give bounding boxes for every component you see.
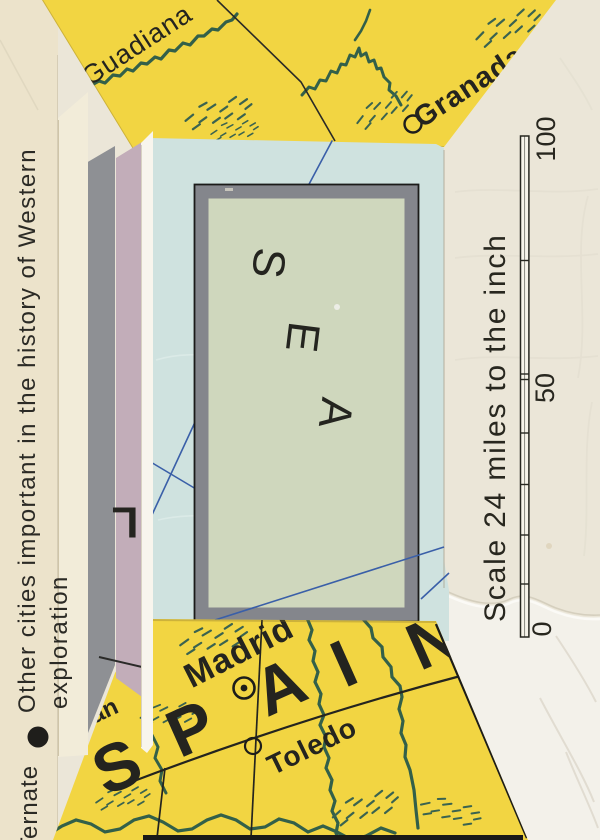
framed-green-panel: S E A xyxy=(195,185,450,622)
scale-label-100: 100 xyxy=(531,116,561,161)
gray-strip xyxy=(86,146,115,733)
madrid-city-marker-dot xyxy=(241,685,248,692)
sea-letter-e: E xyxy=(276,319,330,355)
fragment-letter-l: L xyxy=(112,498,139,547)
legend-bullet-icon xyxy=(28,727,49,748)
sea-letter-s: S xyxy=(242,245,296,281)
paper-speck xyxy=(546,543,552,549)
legend-line1: Other cities important in the history of… xyxy=(14,148,41,713)
panel-inner xyxy=(209,199,405,608)
scale-label-50: 50 xyxy=(530,373,560,403)
legend-entry-ternate: Ternate xyxy=(16,765,43,840)
paper-fleck xyxy=(225,188,233,191)
collage-photo: Guadiana Granada S E A xyxy=(0,0,600,840)
paper-fleck xyxy=(334,304,340,310)
sea-letter-a: A xyxy=(309,395,363,431)
collage-canvas: Guadiana Granada S E A xyxy=(0,0,600,840)
white-strip xyxy=(141,131,153,753)
scale-caption: Scale 24 miles to the inch xyxy=(479,233,512,622)
lavender-strip xyxy=(116,142,142,697)
legend-line2: exploration xyxy=(46,575,73,709)
map-border-bar xyxy=(143,835,523,840)
scale-label-0: 0 xyxy=(527,621,557,636)
